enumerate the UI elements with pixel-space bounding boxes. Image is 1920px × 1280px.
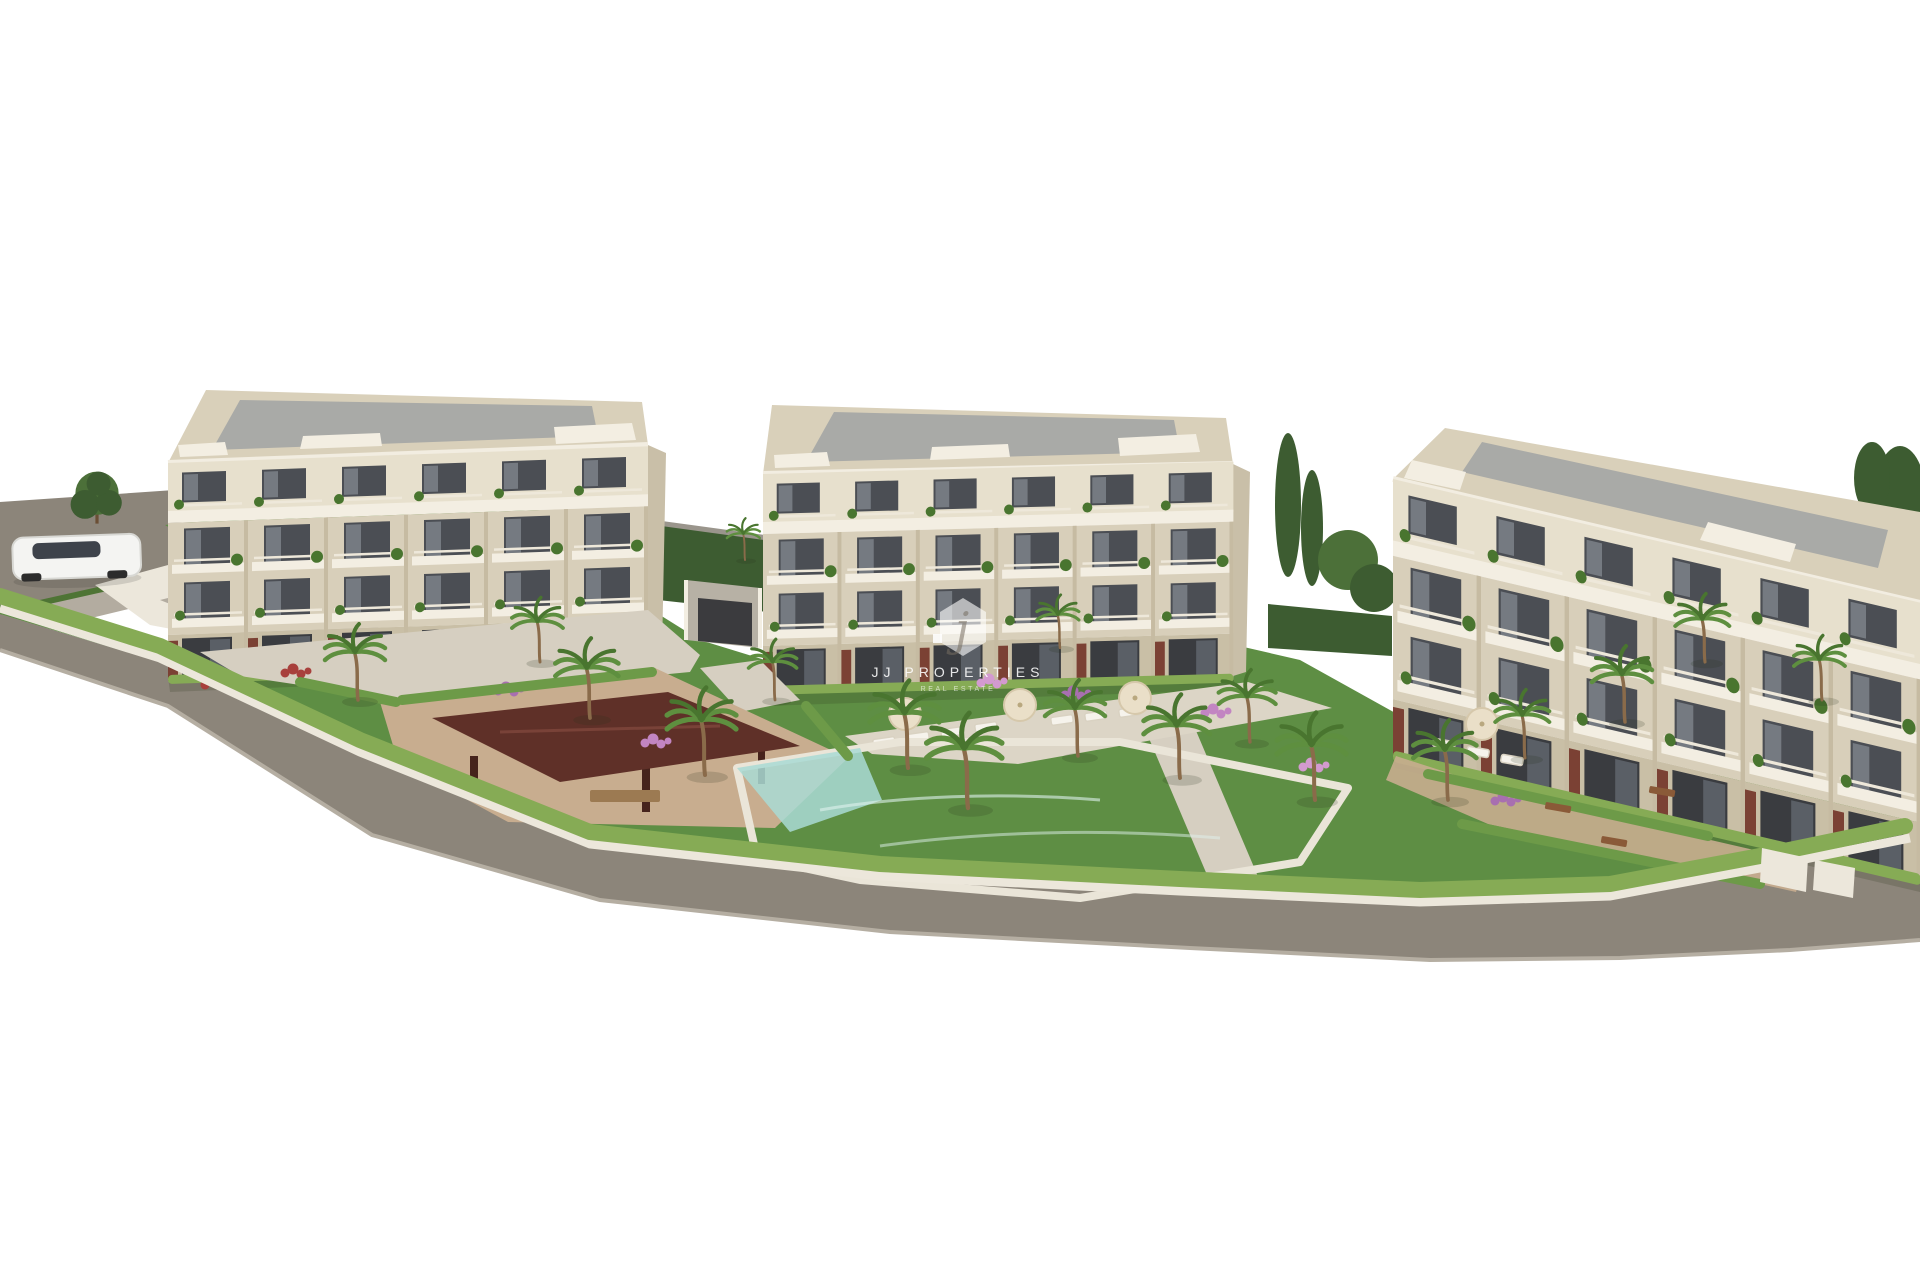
render-canvas: j JJ PROPERTIES REAL ESTATE [0,0,1920,1280]
garage-ramp [686,580,760,648]
building-middle-facade [763,462,1233,695]
cypress-tree [1275,433,1301,577]
brand-name: JJ PROPERTIES [872,664,1045,680]
logo-notch-icon [933,634,942,643]
architectural-render: j JJ PROPERTIES REAL ESTATE [0,0,1920,1280]
car-windshield [32,541,101,559]
building-middle [763,405,1250,706]
building-middle-sidewall [1233,464,1250,676]
car [12,534,142,590]
brand-tagline: REAL ESTATE [921,686,996,693]
picnic-table [590,790,660,802]
